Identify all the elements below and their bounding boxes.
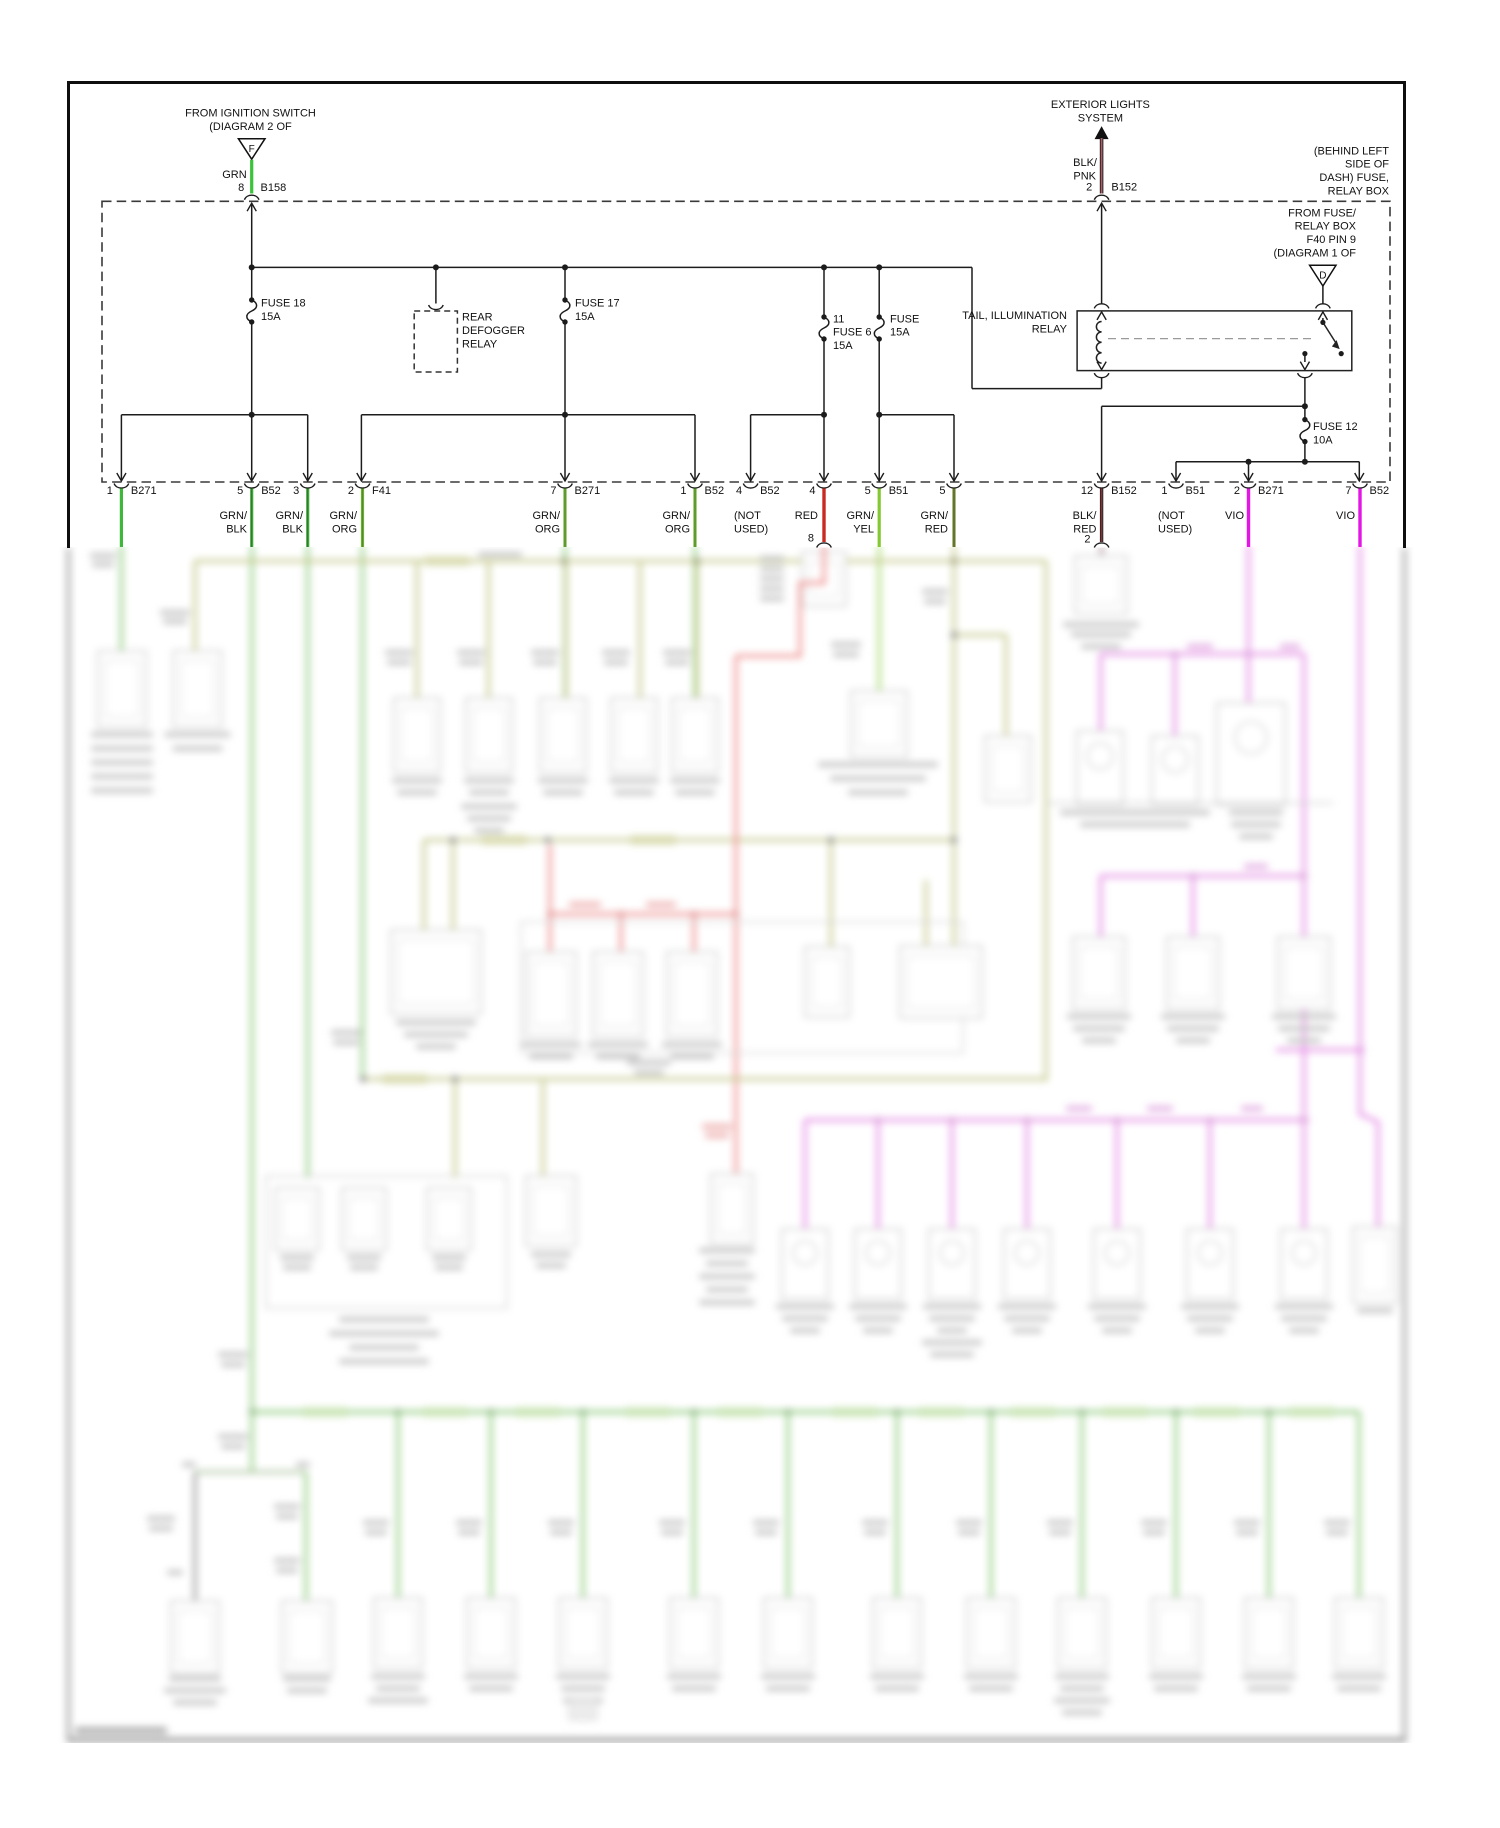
svg-text:GRN/: GRN/ xyxy=(921,510,949,522)
svg-text:ORG: ORG xyxy=(535,523,560,535)
svg-text:(NOT: (NOT xyxy=(734,510,761,522)
svg-text:2: 2 xyxy=(1084,534,1090,546)
svg-text:SIDE OF: SIDE OF xyxy=(1345,159,1389,171)
svg-text:SYSTEM: SYSTEM xyxy=(1078,112,1123,124)
svg-text:ORG: ORG xyxy=(665,523,690,535)
svg-text:FUSE 17: FUSE 17 xyxy=(575,298,620,310)
svg-text:FUSE: FUSE xyxy=(890,313,919,325)
svg-text:BLK/: BLK/ xyxy=(1073,157,1098,169)
svg-text:B52: B52 xyxy=(760,485,780,497)
svg-text:RELAY: RELAY xyxy=(1032,323,1068,335)
svg-text:RELAY: RELAY xyxy=(462,338,498,350)
svg-text:2: 2 xyxy=(1086,181,1092,193)
svg-text:B51: B51 xyxy=(889,485,909,497)
svg-text:DEFOGGER: DEFOGGER xyxy=(462,325,525,337)
svg-text:F40 PIN 9: F40 PIN 9 xyxy=(1306,234,1356,246)
svg-text:1: 1 xyxy=(1161,485,1167,497)
svg-text:(DIAGRAM 2 OF: (DIAGRAM 2 OF xyxy=(209,121,292,133)
svg-text:(DIAGRAM 1 OF: (DIAGRAM 1 OF xyxy=(1273,248,1356,260)
svg-text:15A: 15A xyxy=(261,311,281,323)
svg-text:ORG: ORG xyxy=(332,523,357,535)
svg-text:GRN/: GRN/ xyxy=(663,510,691,522)
svg-text:B152: B152 xyxy=(1111,181,1137,193)
svg-text:F41: F41 xyxy=(372,485,391,497)
svg-text:B271: B271 xyxy=(1258,485,1284,497)
svg-text:B52: B52 xyxy=(261,485,281,497)
svg-text:BLK/: BLK/ xyxy=(1073,510,1098,522)
svg-text:12: 12 xyxy=(1081,485,1093,497)
svg-text:B52: B52 xyxy=(1370,485,1390,497)
svg-text:7: 7 xyxy=(550,485,556,497)
svg-text:3: 3 xyxy=(293,485,299,497)
svg-text:FUSE 12: FUSE 12 xyxy=(1313,421,1358,433)
svg-text:EXTERIOR LIGHTS: EXTERIOR LIGHTS xyxy=(1051,99,1150,111)
svg-text:RED: RED xyxy=(925,523,948,535)
svg-text:GRN/: GRN/ xyxy=(276,510,304,522)
svg-text:RELAY BOX: RELAY BOX xyxy=(1328,186,1390,198)
svg-text:GRN: GRN xyxy=(222,169,247,181)
svg-text:F: F xyxy=(249,144,255,155)
svg-text:GRN/: GRN/ xyxy=(330,510,358,522)
svg-text:RED: RED xyxy=(795,510,818,522)
svg-text:FROM FUSE/: FROM FUSE/ xyxy=(1288,207,1357,219)
svg-text:2: 2 xyxy=(1234,485,1240,497)
svg-text:D: D xyxy=(1319,271,1326,282)
svg-text:GRN/: GRN/ xyxy=(220,510,248,522)
svg-text:BLK: BLK xyxy=(282,523,303,535)
svg-text:PNK: PNK xyxy=(1073,171,1096,183)
svg-text:7: 7 xyxy=(1345,485,1351,497)
svg-text:5: 5 xyxy=(939,485,945,497)
svg-text:8: 8 xyxy=(238,182,244,194)
svg-text:USED): USED) xyxy=(734,523,768,535)
svg-text:2: 2 xyxy=(348,485,354,497)
svg-text:B52: B52 xyxy=(705,485,725,497)
svg-text:TAIL, ILLUMINATION: TAIL, ILLUMINATION xyxy=(962,310,1067,322)
svg-text:11: 11 xyxy=(833,313,844,325)
svg-text:GRN/: GRN/ xyxy=(533,510,561,522)
svg-text:FUSE 18: FUSE 18 xyxy=(261,298,306,310)
svg-text:B271: B271 xyxy=(131,485,157,497)
svg-text:5: 5 xyxy=(865,485,871,497)
svg-text:FROM IGNITION SWITCH: FROM IGNITION SWITCH xyxy=(185,108,316,120)
svg-text:DASH) FUSE,: DASH) FUSE, xyxy=(1319,172,1389,184)
svg-text:15A: 15A xyxy=(890,327,910,339)
svg-text:1: 1 xyxy=(107,485,113,497)
svg-text:15A: 15A xyxy=(833,340,853,352)
svg-text:BLK: BLK xyxy=(226,523,247,535)
svg-text:FUSE 6: FUSE 6 xyxy=(833,327,872,339)
svg-text:10A: 10A xyxy=(1313,435,1333,447)
svg-text:RELAY BOX: RELAY BOX xyxy=(1295,221,1357,233)
svg-text:1: 1 xyxy=(680,485,686,497)
svg-text:5: 5 xyxy=(237,485,243,497)
svg-text:B51: B51 xyxy=(1186,485,1206,497)
svg-text:REAR: REAR xyxy=(462,312,493,324)
svg-text:(NOT: (NOT xyxy=(1158,510,1185,522)
svg-text:4: 4 xyxy=(809,485,815,497)
svg-text:USED): USED) xyxy=(1158,523,1192,535)
svg-text:GRN/: GRN/ xyxy=(847,510,875,522)
svg-text:(BEHIND LEFT: (BEHIND LEFT xyxy=(1314,145,1389,157)
svg-text:B158: B158 xyxy=(261,182,287,194)
svg-text:8: 8 xyxy=(808,533,814,545)
svg-text:VIO: VIO xyxy=(1336,510,1355,522)
svg-text:4: 4 xyxy=(736,485,742,497)
svg-text:B152: B152 xyxy=(1111,485,1137,497)
svg-text:15A: 15A xyxy=(575,311,595,323)
svg-text:YEL: YEL xyxy=(853,523,874,535)
svg-text:VIO: VIO xyxy=(1225,510,1244,522)
svg-text:B271: B271 xyxy=(575,485,601,497)
